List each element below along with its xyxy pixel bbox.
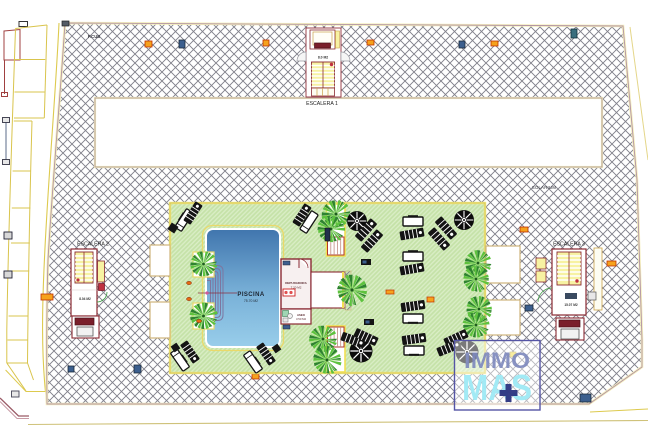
svg-text:ESCALERA 3: ESCALERA 3 (553, 242, 585, 248)
svg-text:MAS: MAS (462, 367, 532, 408)
svg-text:DEPURADORA: DEPURADORA (285, 281, 307, 285)
svg-text:8.04 M2: 8.04 M2 (79, 297, 91, 301)
svg-text:ESCALERA 1: ESCALERA 1 (306, 101, 338, 107)
svg-text:SOLARIUM: SOLARIUM (532, 185, 556, 190)
svg-text:3.50 M2: 3.50 M2 (296, 317, 307, 321)
svg-text:ESCALERA 2: ESCALERA 2 (77, 242, 109, 248)
svg-text:75.70 M2: 75.70 M2 (244, 299, 258, 303)
svg-text:PISCINA: PISCINA (237, 292, 264, 298)
svg-text:15.07 M2: 15.07 M2 (564, 303, 578, 307)
svg-text:P.CUB: P.CUB (88, 34, 101, 39)
svg-text:8.0 M2: 8.0 M2 (318, 56, 328, 60)
